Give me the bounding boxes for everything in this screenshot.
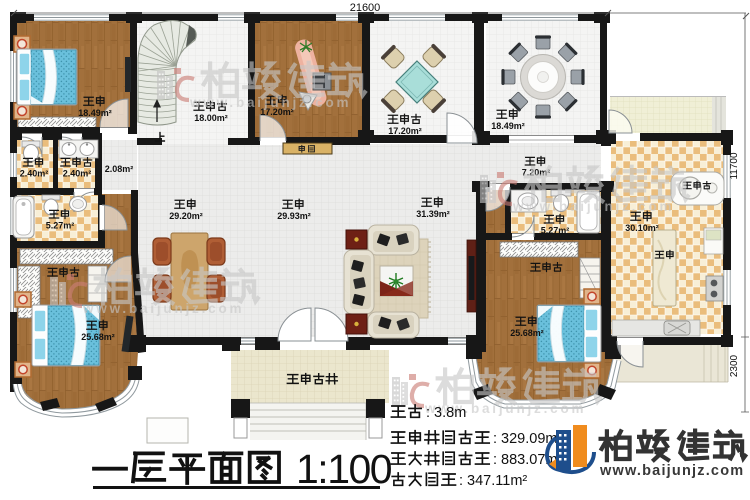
svg-text:30.10m²: 30.10m²	[625, 223, 659, 233]
svg-text:2.40m²: 2.40m²	[63, 169, 92, 179]
svg-text:2300: 2300	[729, 354, 740, 377]
svg-text:21600: 21600	[350, 2, 381, 14]
svg-text:17.20m²: 17.20m²	[388, 126, 422, 136]
svg-text:2.40m²: 2.40m²	[20, 169, 49, 179]
svg-text:18.00m²: 18.00m²	[194, 113, 228, 123]
svg-text:18.49m²: 18.49m²	[78, 108, 112, 118]
svg-text:2.08m²: 2.08m²	[105, 164, 134, 174]
svg-text:: 347.11m²: : 347.11m²	[459, 473, 527, 489]
svg-text:31.39m²: 31.39m²	[416, 209, 450, 219]
svg-text:1:100: 1:100	[296, 446, 392, 492]
svg-text:www.baijunjz.com: www.baijunjz.com	[512, 199, 674, 214]
svg-text:29.93m²: 29.93m²	[277, 211, 311, 221]
svg-text:18.49m²: 18.49m²	[491, 121, 525, 131]
svg-text:25.68m²: 25.68m²	[510, 328, 544, 338]
svg-text:29.20m²: 29.20m²	[169, 211, 203, 221]
svg-text:www.baijunjz.com: www.baijunjz.com	[82, 301, 244, 316]
svg-text:5.27m²: 5.27m²	[46, 221, 75, 231]
svg-text:25.68m²: 25.68m²	[81, 332, 115, 342]
svg-text:5.27m²: 5.27m²	[541, 226, 570, 236]
svg-text:11700: 11700	[729, 152, 740, 180]
svg-text:: 3.8m: : 3.8m	[426, 405, 466, 421]
svg-text:www.baijunjz.com: www.baijunjz.com	[189, 95, 351, 110]
svg-text:www.baijunjz.com: www.baijunjz.com	[599, 463, 744, 479]
